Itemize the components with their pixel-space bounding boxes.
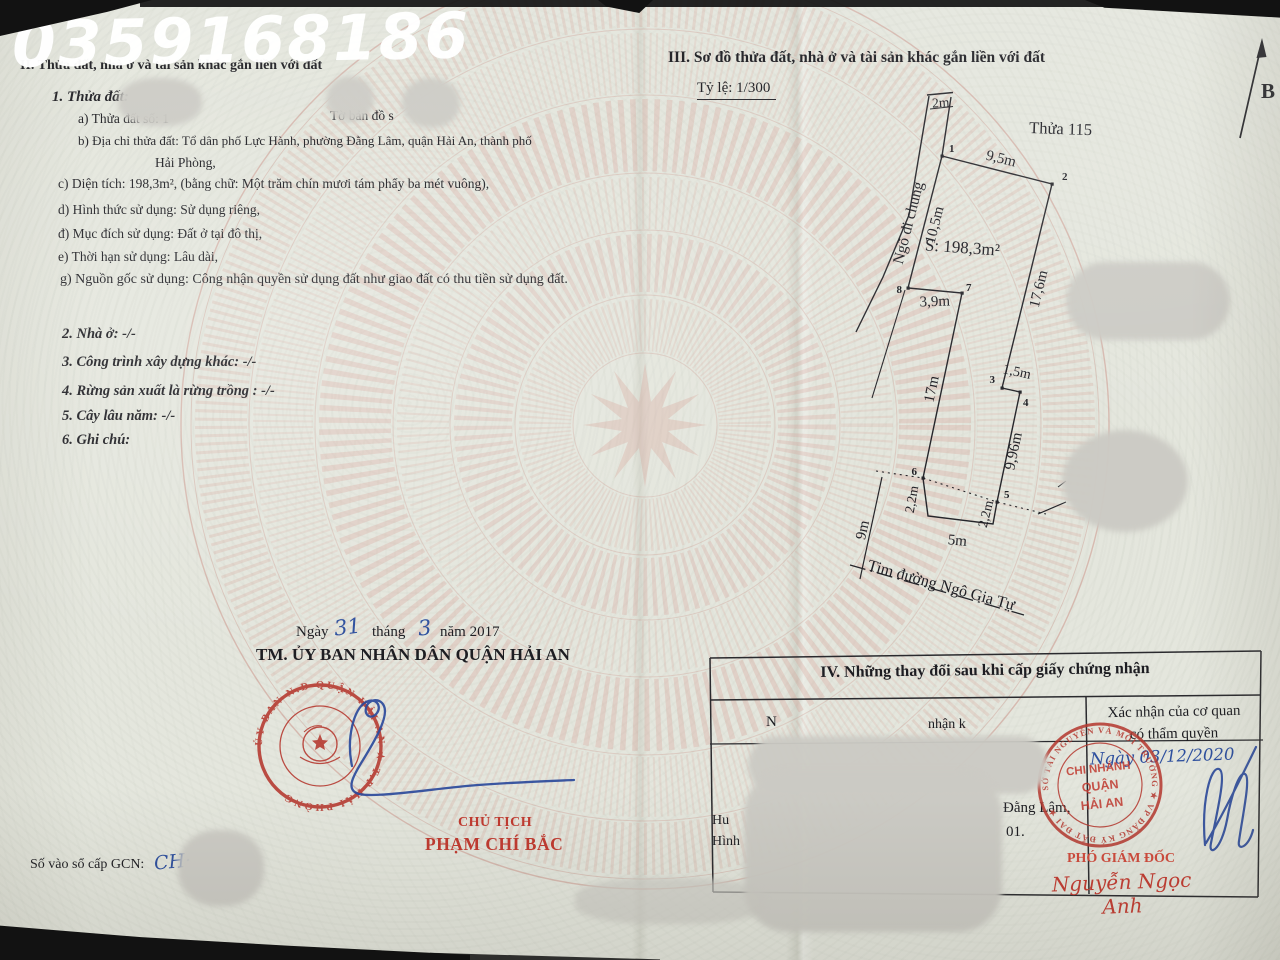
certificate-photo: B xyxy=(0,0,1280,960)
redaction-gcn-number xyxy=(178,830,264,906)
redaction-heading-end xyxy=(326,76,374,122)
registry-stamp-line2: QUẬN xyxy=(1081,776,1119,795)
redaction-parcel-number xyxy=(118,78,202,126)
registry-stamp-line1: CHI NHÁNH xyxy=(1066,759,1132,779)
redaction-table-main xyxy=(744,770,1002,932)
redaction-table-bottom xyxy=(575,878,765,924)
redaction-neighbor-2 xyxy=(1062,430,1188,532)
stamp-star xyxy=(312,734,328,750)
redaction-neighbor-1 xyxy=(1066,262,1230,340)
committee-stamp: ỦY BAN N.D QUẬN HẢI AN ★ T.P HẢI PHÒNG xyxy=(253,680,387,813)
deputy-signature xyxy=(1204,747,1256,850)
registry-stamp: SỞ TÀI NGUYÊN VÀ MÔI TRƯỜNG ★ VP ĐĂNG KÝ… xyxy=(1033,718,1167,852)
redaction-map-sheet xyxy=(402,78,460,128)
registry-stamp-line3: HẢI AN xyxy=(1080,794,1124,813)
